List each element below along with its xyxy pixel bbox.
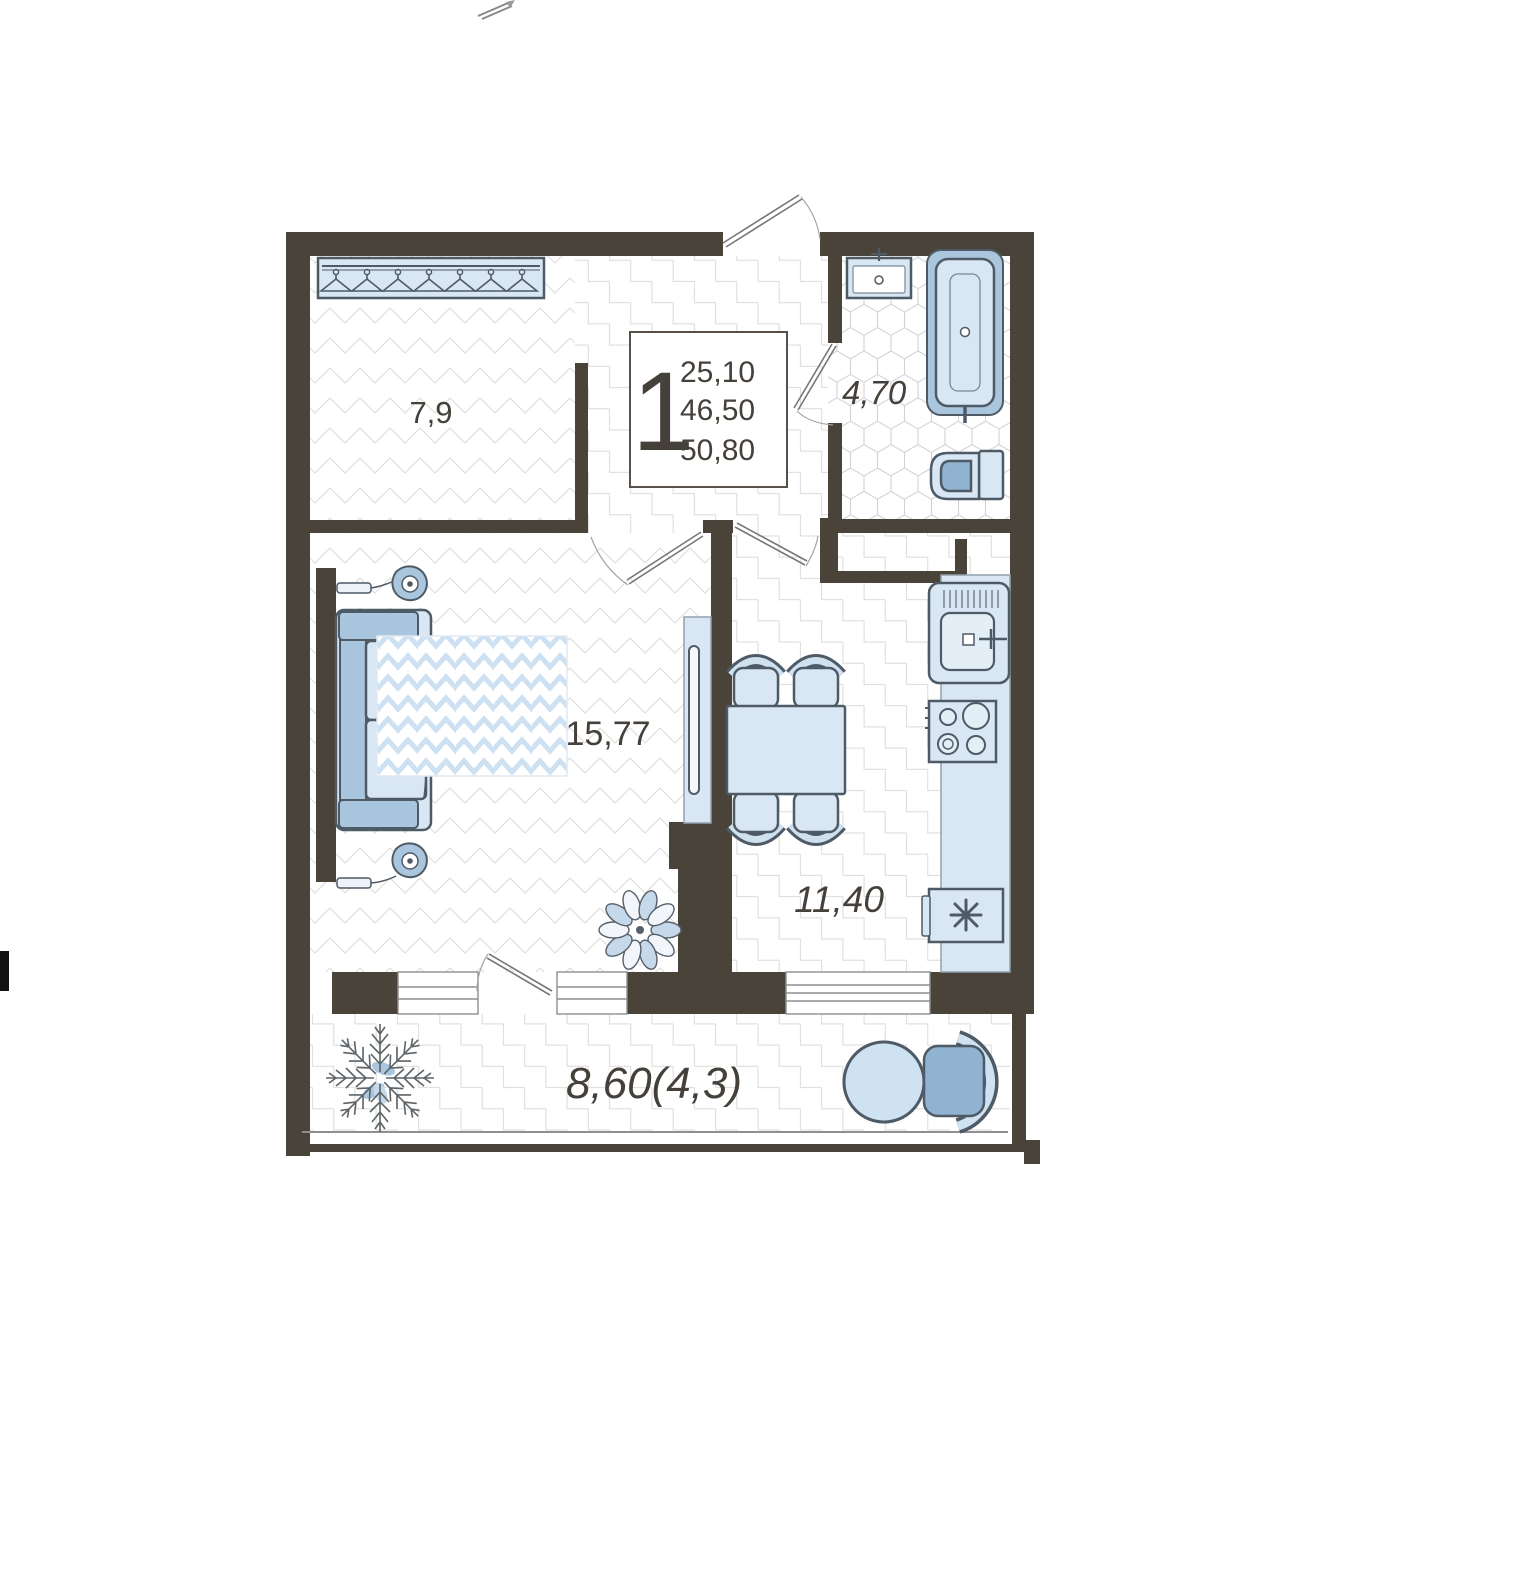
window-living-1 bbox=[398, 972, 478, 1014]
kitchen-area-label: 11,40 bbox=[794, 879, 884, 920]
kitchen-sink bbox=[929, 583, 1009, 683]
hanger-rail bbox=[318, 258, 544, 298]
north-mark bbox=[478, 3, 512, 19]
bathtub bbox=[927, 250, 1003, 423]
bathroom-area-label: 4,70 bbox=[842, 374, 907, 411]
wall-balcony-pier-b bbox=[627, 972, 786, 1014]
window-kitchen bbox=[786, 972, 930, 1014]
floor-plan: 1 25,10 46,50 50,80 7,9 4,70 15,77 11,40… bbox=[0, 0, 1520, 1576]
balcony-area-label: 8,60(4,3) bbox=[566, 1059, 742, 1108]
legend-total-area: 50,80 bbox=[680, 434, 755, 467]
wall-top-right bbox=[820, 232, 1034, 256]
floor-plan-page: 1 25,10 46,50 50,80 7,9 4,70 15,77 11,40… bbox=[0, 0, 1520, 1576]
entry-door bbox=[723, 195, 820, 247]
snowflake-icon bbox=[951, 900, 981, 930]
wardrobe-area-label: 7,9 bbox=[409, 395, 452, 430]
stove bbox=[925, 701, 996, 762]
edge-artifact bbox=[0, 951, 9, 991]
north-mark-tip bbox=[506, 0, 515, 8]
wall-balcony-pier-a bbox=[332, 972, 398, 1014]
tv bbox=[684, 617, 711, 823]
wall-wardrobe-bottom bbox=[310, 520, 588, 533]
toilet bbox=[931, 451, 1003, 499]
wall-partition-pier bbox=[669, 822, 732, 869]
dining-chair bbox=[731, 792, 781, 840]
dining-table bbox=[727, 706, 845, 794]
wall-top-left bbox=[286, 232, 723, 256]
living-area-label: 15,77 bbox=[565, 715, 650, 753]
wall-partition-lower bbox=[678, 869, 732, 972]
window-living-2 bbox=[557, 972, 627, 1014]
dining-chair bbox=[791, 661, 841, 709]
wall-bath-left-upper bbox=[828, 232, 842, 343]
wall-balcony-pier-c bbox=[930, 972, 1010, 1014]
wall-left bbox=[286, 232, 310, 1156]
legend-apartment-area: 46,50 bbox=[680, 394, 755, 427]
wall-pilaster bbox=[316, 568, 336, 882]
fridge bbox=[922, 889, 1003, 942]
carpet bbox=[377, 636, 567, 776]
dining-chair bbox=[791, 792, 841, 840]
balcony-chair bbox=[924, 1038, 991, 1126]
wall-wardrobe-right bbox=[575, 363, 588, 533]
legend: 1 25,10 46,50 50,80 bbox=[630, 332, 787, 487]
wall-right bbox=[1010, 232, 1034, 1014]
wall-bath-bottom bbox=[828, 519, 1034, 533]
legend-living-area: 25,10 bbox=[680, 356, 755, 389]
balcony-table bbox=[844, 1042, 924, 1122]
wall-balcony-right bbox=[1012, 1014, 1026, 1144]
dining-chair bbox=[731, 661, 781, 709]
balcony-rail-outer bbox=[286, 1144, 1040, 1152]
wall-bath-left-lower bbox=[828, 423, 842, 527]
